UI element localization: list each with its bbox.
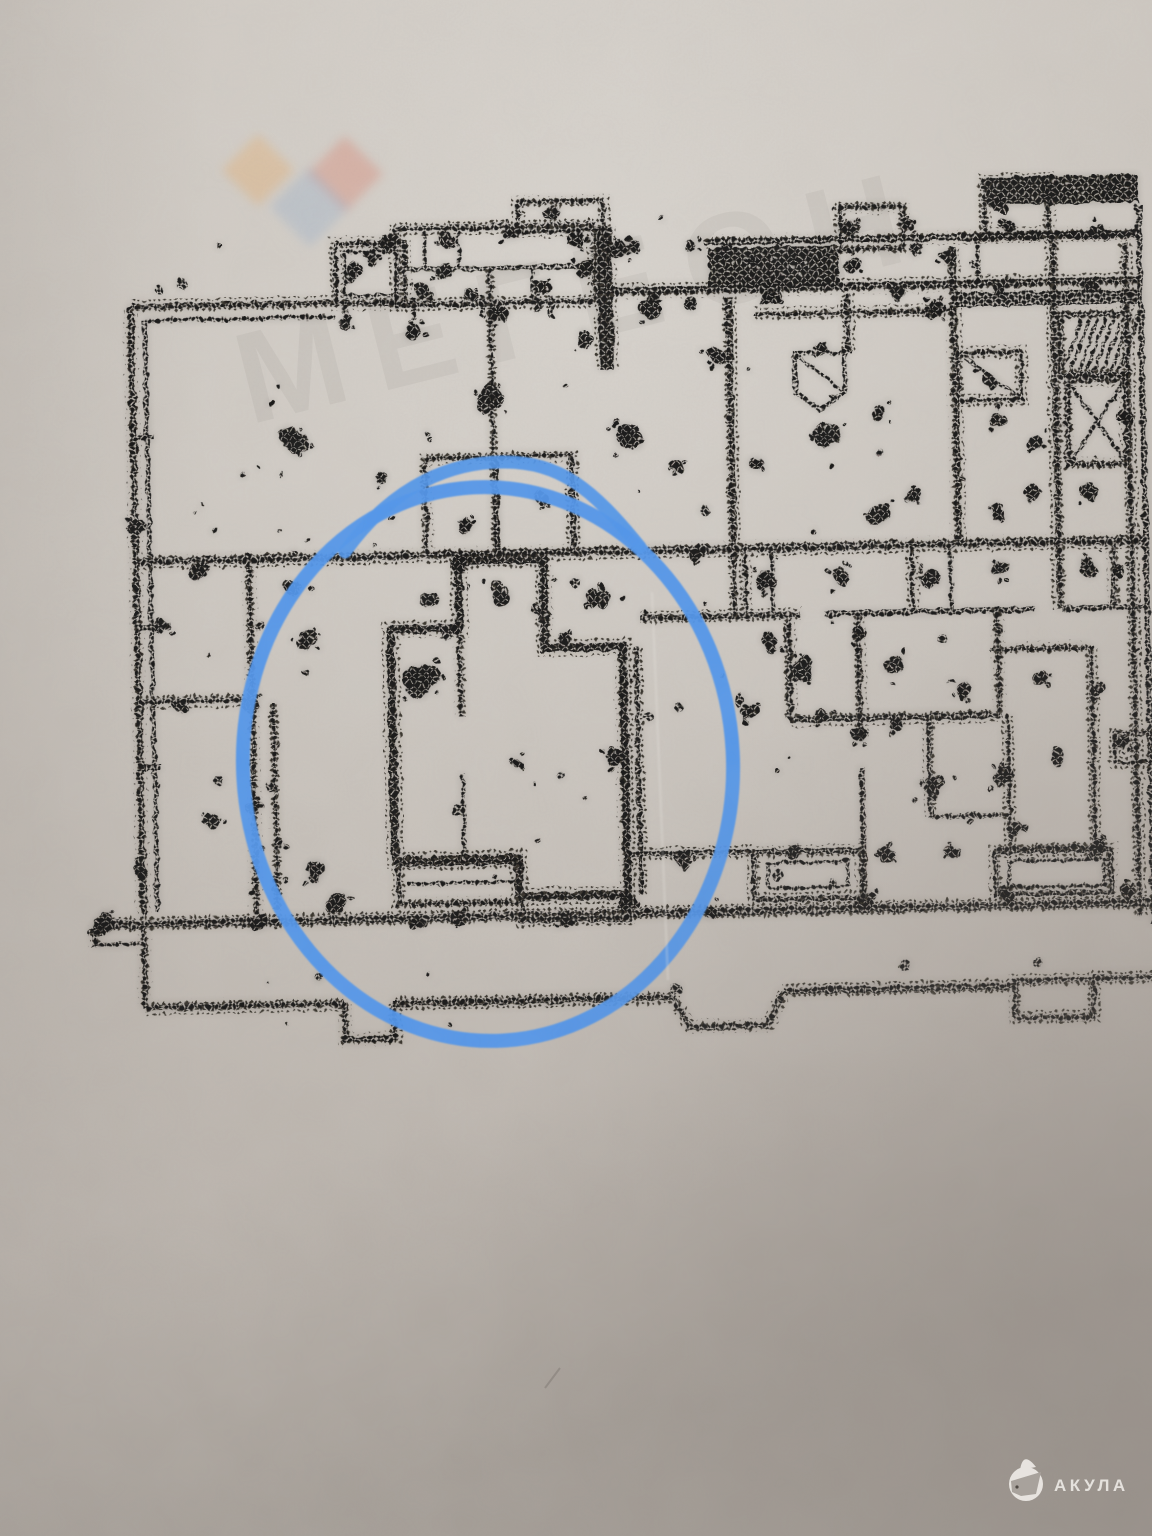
svg-text:АКУЛА: АКУЛА [1054, 1476, 1129, 1495]
